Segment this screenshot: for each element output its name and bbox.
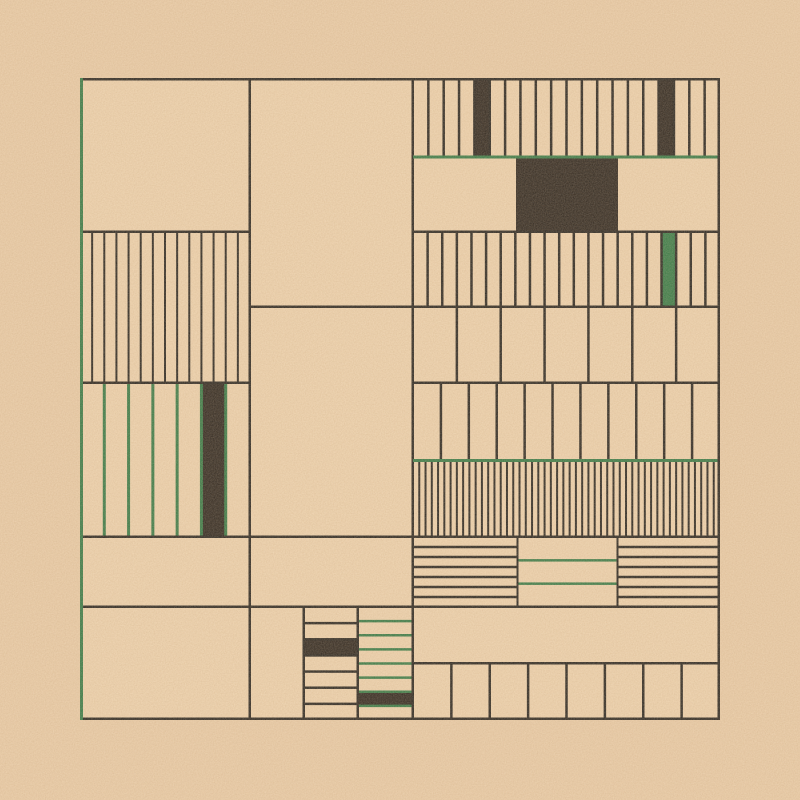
stripe-line <box>691 383 694 460</box>
filled-stripe <box>304 639 358 655</box>
stripe-line <box>518 559 618 562</box>
stripe-line <box>418 462 420 536</box>
stripe-line <box>642 663 645 720</box>
stripe-line <box>413 566 518 569</box>
stripe-line <box>646 232 649 307</box>
stripe-line <box>358 620 413 623</box>
stripe-line <box>618 556 720 559</box>
stripe-line <box>673 79 676 157</box>
stripe-line <box>213 232 215 383</box>
stripe-line <box>627 79 630 157</box>
stripe-line <box>587 462 589 536</box>
stripe-line <box>575 462 577 536</box>
stripe-line <box>456 462 458 536</box>
stripe-line <box>514 232 517 307</box>
green-rule-460 <box>413 459 720 462</box>
stripe-line <box>602 232 605 307</box>
stripe-line <box>489 663 492 720</box>
stripe-line <box>413 576 518 579</box>
stripe-line <box>581 79 584 157</box>
stripe-line <box>413 546 518 549</box>
dark-block <box>516 157 618 232</box>
stripe-line <box>611 79 614 157</box>
stripe-line <box>565 79 568 157</box>
stripe-line <box>485 232 488 307</box>
stripe-line <box>619 462 621 536</box>
stripe-line <box>519 462 521 536</box>
stripe-line <box>140 232 142 383</box>
stripe-line <box>675 232 678 307</box>
stripe-line <box>618 586 720 589</box>
h-383-right <box>413 382 720 385</box>
stripe-line <box>642 79 645 157</box>
stripe-line <box>681 462 683 536</box>
stripe-line <box>565 663 568 720</box>
stripe-line <box>176 232 178 383</box>
h-307 <box>249 306 721 309</box>
stripe-line <box>688 462 690 536</box>
stripe-line <box>556 462 558 536</box>
h-232-right <box>413 231 720 234</box>
stripe-line <box>713 462 715 536</box>
v-518 <box>517 537 519 607</box>
frame-bottom <box>80 718 720 721</box>
stripe-line <box>304 654 358 657</box>
stripe-line <box>550 79 553 157</box>
stripe-line <box>581 462 583 536</box>
stripe-line <box>506 462 508 536</box>
stripe-line <box>431 462 433 536</box>
stripe-line <box>495 383 498 460</box>
stripe-line <box>550 462 552 536</box>
stripe-line <box>631 462 633 536</box>
stripe-line <box>115 232 117 383</box>
stripe-line <box>425 462 427 536</box>
frame-top <box>80 78 720 81</box>
stripe-line <box>487 462 489 536</box>
stripe-line <box>103 232 105 383</box>
stripe-line <box>475 462 477 536</box>
stripe-line <box>587 232 590 307</box>
h-663 <box>413 662 720 665</box>
stripe-line <box>358 648 413 651</box>
stripe-line <box>500 462 502 536</box>
stripe-line <box>91 232 93 383</box>
stripe-line <box>596 79 599 157</box>
stripe-line <box>562 462 564 536</box>
filled-stripe <box>474 79 489 157</box>
stripe-line <box>607 383 610 460</box>
h-232-left <box>80 231 250 234</box>
stripe-line <box>151 383 154 537</box>
stripe-line <box>618 576 720 579</box>
stripe-line <box>606 462 608 536</box>
stripe-line <box>604 663 607 720</box>
v-304 <box>303 607 306 720</box>
stripe-line <box>519 79 522 157</box>
stripe-line <box>493 462 495 536</box>
frame-right <box>718 78 721 720</box>
stripe-line <box>481 462 483 536</box>
stripe-line <box>587 307 590 383</box>
stripe-line <box>152 232 154 383</box>
stripe-line <box>612 462 614 536</box>
stripe-line <box>440 383 443 460</box>
stripe-line <box>413 586 518 589</box>
stripe-line <box>358 676 413 679</box>
stripe-line <box>499 307 502 383</box>
stripe-line <box>703 79 706 157</box>
stripe-line <box>704 232 707 307</box>
stripe-line <box>594 462 596 536</box>
stripe-line <box>569 462 571 536</box>
stripe-line <box>688 79 691 157</box>
stripe-line <box>103 383 106 537</box>
stripe-line <box>675 307 678 383</box>
frame-left <box>80 78 83 720</box>
stripe-line <box>579 383 582 460</box>
stripe-line <box>631 307 634 383</box>
divider-v-right <box>412 78 415 720</box>
stripe-line <box>499 232 502 307</box>
stripe-line <box>543 307 546 383</box>
stripe-line <box>470 232 473 307</box>
stripe-line <box>650 462 652 536</box>
stripe-line <box>443 462 445 536</box>
h-607 <box>80 606 720 609</box>
stripe-line <box>631 232 634 307</box>
stripe-line <box>663 383 666 460</box>
generative-grid-artwork <box>0 0 800 800</box>
stripe-line <box>518 582 618 585</box>
stripe-line <box>625 462 627 536</box>
filled-stripe <box>201 383 225 537</box>
stripe-line <box>456 232 459 307</box>
stripe-line <box>458 79 461 157</box>
stripe-line <box>616 232 619 307</box>
stripe-line <box>544 462 546 536</box>
stripe-line <box>504 79 507 157</box>
stripe-line <box>669 462 671 536</box>
divider-v-left <box>249 78 252 720</box>
stripe-line <box>128 232 130 383</box>
stripe-line <box>456 307 459 383</box>
stripe-line <box>635 383 638 460</box>
stripe-line <box>675 462 677 536</box>
stripe-line <box>224 383 227 537</box>
filled-stripe <box>358 692 413 706</box>
stripe-line <box>543 232 546 307</box>
stripe-line <box>694 462 696 536</box>
stripe-line <box>441 232 444 307</box>
stripe-line <box>450 462 452 536</box>
stripe-line <box>618 546 720 549</box>
stripe-line <box>535 79 538 157</box>
stripe-line <box>304 670 358 673</box>
stripe-line <box>523 383 526 460</box>
stripe-line <box>618 566 720 569</box>
stripe-line <box>426 232 429 307</box>
stripe-line <box>462 462 464 536</box>
stripe-line <box>700 462 702 536</box>
stripe-line <box>690 232 693 307</box>
stripe-line <box>706 462 708 536</box>
stripe-line <box>225 232 227 383</box>
stripe-line <box>304 638 358 641</box>
stripe-line <box>525 462 527 536</box>
h-383-left <box>80 382 250 385</box>
stripe-line <box>176 383 179 537</box>
stripe-line <box>638 462 640 536</box>
stripe-line <box>657 79 660 157</box>
stripe-line <box>512 462 514 536</box>
stripe-line <box>358 634 413 637</box>
stripe-line <box>427 79 430 157</box>
stripe-line <box>529 232 532 307</box>
stripe-line <box>304 686 358 689</box>
stripe-line <box>680 663 683 720</box>
stripe-line <box>437 462 439 536</box>
stripe-line <box>660 232 663 307</box>
stripe-line <box>473 79 476 157</box>
v-618 <box>617 537 619 607</box>
stripe-line <box>304 622 358 625</box>
stripe-line <box>237 232 239 383</box>
stripe-line <box>442 79 445 157</box>
stripe-line <box>537 462 539 536</box>
stripe-line <box>200 383 203 537</box>
artwork-layers <box>0 0 800 800</box>
stripe-line <box>558 232 561 307</box>
green-rule-157 <box>413 156 720 159</box>
stripe-line <box>468 462 470 536</box>
stripe-line <box>600 462 602 536</box>
stripe-line <box>413 596 518 599</box>
stripe-line <box>489 79 492 157</box>
stripe-line <box>468 383 471 460</box>
stripe-line <box>450 663 453 720</box>
v-358 <box>357 607 360 720</box>
dark-block <box>516 157 618 232</box>
stripe-line <box>527 663 530 720</box>
stripe-line <box>551 383 554 460</box>
stripe-line <box>531 462 533 536</box>
stripe-line <box>200 232 202 383</box>
stripe-line <box>127 383 130 537</box>
stripe-line <box>413 556 518 559</box>
stripe-line <box>164 232 166 383</box>
stripe-line <box>358 705 413 708</box>
artwork-stage <box>0 0 800 800</box>
h-537 <box>80 536 720 539</box>
stripe-line <box>644 462 646 536</box>
stripe-line <box>188 232 190 383</box>
stripe-line <box>663 462 665 536</box>
stripe-line <box>618 596 720 599</box>
stripe-line <box>358 691 413 694</box>
stripe-line <box>573 232 576 307</box>
stripe-line <box>358 662 413 665</box>
stripe-line <box>656 462 658 536</box>
filled-stripe <box>662 232 677 307</box>
filled-stripe <box>659 79 674 157</box>
stripe-line <box>304 703 358 706</box>
